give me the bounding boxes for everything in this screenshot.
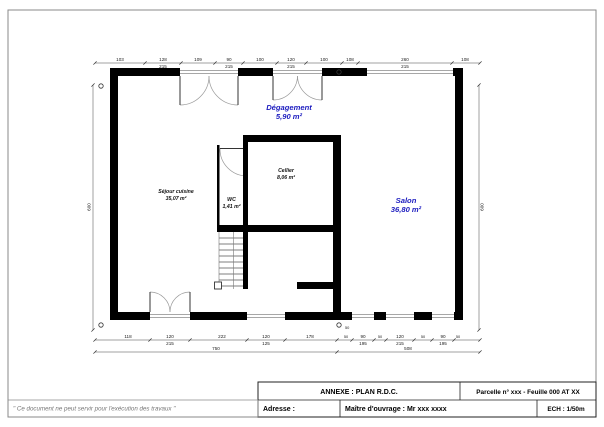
room-name: Cellier [278, 168, 295, 174]
stair-rails [219, 232, 234, 289]
wc-left-wall [217, 145, 220, 232]
room-label-degagement: Dégagement5,90 m² [266, 103, 312, 121]
dimension-label: 109 [194, 57, 202, 62]
dimension-label: 100 [256, 57, 264, 62]
dimension-lines: 1031282151099021510012021510010826021510… [87, 57, 485, 354]
dimension-label: 750 [212, 346, 220, 351]
dimension-label: 120 [396, 334, 404, 339]
room-name: Séjour cuisine [158, 189, 194, 195]
stair-newel [215, 282, 222, 289]
titleblock-parcelle: Parcelle n° xxx - Feuille 000 AT XX [476, 388, 580, 396]
dimension-label: 195 [359, 341, 367, 346]
stair-treads [219, 238, 243, 286]
dimension-right-total: 600 [480, 203, 485, 211]
dimension-label: 50 [456, 334, 461, 339]
dimension-label: 118 [124, 334, 132, 339]
stair-right-wall [243, 232, 248, 289]
dimension-label: 195 [439, 341, 447, 346]
sheet-border [8, 10, 596, 417]
room-area: 5,90 m² [276, 112, 303, 121]
titleblock-maitre-ouvrage: Maître d'ouvrage : Mr xxx xxxx [345, 406, 447, 413]
room-label-salon: Salon36,80 m² [391, 196, 422, 214]
dimension-label: 215 [401, 64, 409, 69]
room-name: WC [227, 197, 236, 203]
cellier-bottom-wall [217, 225, 340, 232]
room-area: 8,06 m² [277, 175, 295, 181]
dimension-label: 50 [344, 334, 349, 339]
room-area: 35,07 m² [166, 196, 187, 202]
dimension-label: 215 [396, 341, 404, 346]
dimension-label: 128 [159, 57, 167, 62]
dimension-label: 215 [287, 64, 295, 69]
dimension-label: 120 [262, 334, 270, 339]
dimension-label: 90 [226, 57, 232, 62]
room-area: 36,80 m² [391, 205, 422, 214]
titleblock-adresse: Adresse : [263, 406, 295, 413]
floor-plan: 50 Dégagement5,90 m²Séjour cuisine35,07 … [87, 57, 485, 354]
dimension-label: 90 [360, 334, 366, 339]
dimension-label: 125 [262, 341, 270, 346]
drawing-sheet: 50 Dégagement5,90 m²Séjour cuisine35,07 … [0, 0, 604, 427]
note-strip: " Ce document ne peut servir pour l'exéc… [8, 400, 258, 417]
dimension-label: 215 [225, 64, 233, 69]
marker-subscript: 50 [345, 325, 350, 330]
cellier-top-wall [243, 135, 340, 142]
room-label-sejour-cuisine: Séjour cuisine35,07 m² [158, 189, 194, 202]
titleblock-echelle: ECH : 1/50m [547, 406, 585, 413]
staircase [215, 232, 244, 289]
dimension-label: 178 [306, 334, 314, 339]
room-name: Salon [396, 196, 417, 205]
room-label-wc: WC1,41 m² [223, 197, 241, 210]
titleblock-annexe: ANNEXE : PLAN R.D.C. [320, 389, 397, 396]
dimension-label: 120 [287, 57, 295, 62]
dim-labels: 1031282151099021510012021510010826021510… [87, 57, 485, 351]
floor-plan-sheet: 50 Dégagement5,90 m²Séjour cuisine35,07 … [0, 0, 604, 427]
dimension-label: 120 [166, 334, 174, 339]
dimension-label: 103 [116, 57, 124, 62]
room-label-cellier: Cellier8,06 m² [277, 168, 295, 181]
dimension-label: 90 [440, 334, 446, 339]
interior-walls [217, 135, 341, 320]
title-block: ANNEXE : PLAN R.D.C. Parcelle n° xxx - F… [258, 382, 596, 417]
room-name: Dégagement [266, 103, 312, 112]
dimension-left-total: 600 [87, 203, 92, 211]
origin-marker-bottom-mid [337, 323, 341, 327]
dimension-label: 108 [346, 57, 354, 62]
dimension-label: 222 [218, 334, 226, 339]
wc-right-wall [243, 135, 248, 232]
disclaimer-note: " Ce document ne peut servir pour l'exéc… [13, 406, 176, 413]
dimension-label: 100 [320, 57, 328, 62]
dimension-label: 50 [421, 334, 426, 339]
dimension-label: 50 [378, 334, 383, 339]
origin-marker-bottom-left [99, 323, 103, 327]
origin-marker-top-left [99, 84, 103, 88]
room-area: 1,41 m² [223, 204, 241, 210]
room-labels: Dégagement5,90 m²Séjour cuisine35,07 m²W… [158, 103, 421, 214]
wall-stub [297, 282, 341, 289]
dimension-label: 108 [461, 57, 469, 62]
dimension-label: 215 [166, 341, 174, 346]
dimension-label: 215 [159, 64, 167, 69]
dimension-label: 260 [401, 57, 409, 62]
dimension-label: 508 [404, 346, 412, 351]
